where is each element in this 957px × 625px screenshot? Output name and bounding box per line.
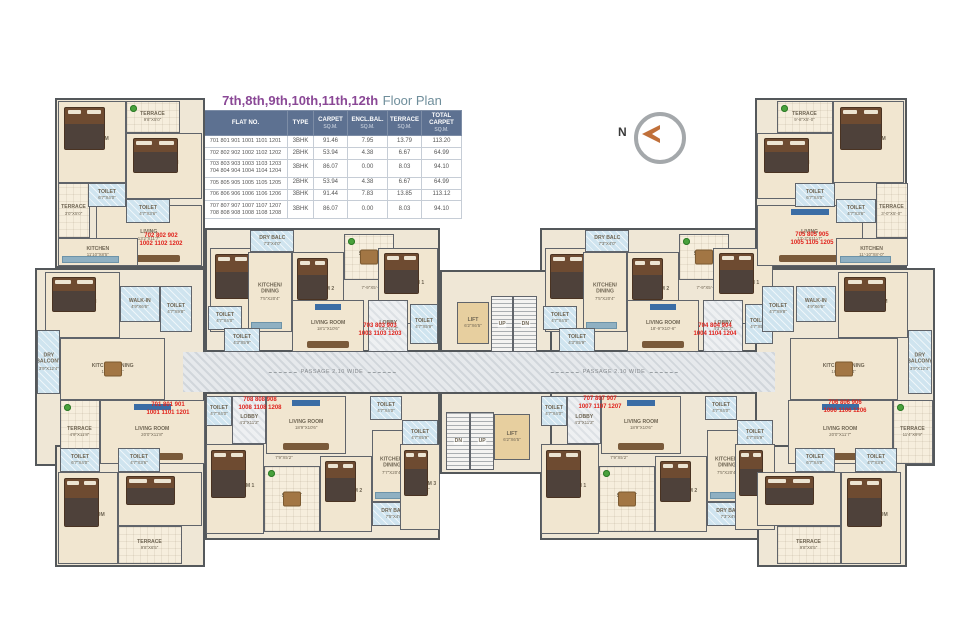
unit-number-label-705: 705 805 9051005 1105 1205 [790,232,833,248]
unit-number-line: 1005 1105 1205 [790,240,833,248]
kitchen-counter-icon [375,492,404,499]
room-lift-bottom: LIFT6'2"X6'5" [494,414,530,460]
room-706-bed2: BED ROOM9'8"X10'8" [757,472,841,526]
room-dimensions: 4'7"X4'0" [712,409,730,414]
room-dimensions: 4'7"X3'6" [847,212,865,217]
unit-number-line: 708 808 908 [238,397,281,405]
bed-icon [297,258,328,301]
room-name: KITCHEN [859,246,886,252]
room-label: 7'9"X5'2" [273,455,295,461]
plant-icon [268,470,275,477]
sofa-icon [283,443,330,450]
room-name: TOILET [411,429,430,435]
tv-icon [315,304,340,310]
room-name: TOILET [216,312,235,318]
room-label: KITCHEN/ DINING7'5"X20'4" [249,282,291,301]
room-name: KITCHEN/ DINING [587,283,623,294]
bed-icon [384,253,420,293]
room-702-toilet1: TOILET6'7"X4'0" [88,183,126,207]
room-706-bed: BED ROOM13'6"X9'6" [838,272,908,338]
unit-number-label-707: 707 807 9071007 1107 1207 [578,396,621,412]
room-707-sitout: SIT OUT7'1"X6'1" [599,466,655,532]
unit-number-line: 706 806 906 [823,400,866,408]
room-label: TOILET4'7"X3'6" [845,205,867,218]
unit-number-line: 703 803 903 [358,323,401,331]
bed-icon [550,254,584,299]
room-705-mbed: M.BED ROOM10'4"X13'3" [833,101,904,183]
unit-number-line: 1008 1108 1208 [238,405,281,413]
room-label: TOILET4'7"X4'0" [549,312,571,325]
room-name: LIFT [503,431,522,437]
room-701-toileta: TOILET6'7"X4'0" [60,448,100,472]
unit-number-line: 707 807 907 [578,396,621,404]
room-label: WALK-IN4'9"X6'6" [127,298,153,311]
unit-number-label-706: 706 806 9061006 1106 1206 [823,400,866,416]
room-label: LIVING ROOM18'9"X10'6" [621,419,661,432]
room-label: LOBBY4'3"X11'2" [572,414,597,427]
room-dimensions: 4'7"X5'9" [415,325,433,330]
room-706-kitchen: KITCHEN/DINING18'11"X12'4" [790,338,898,400]
bed-icon [325,461,356,501]
kitchen-counter-icon [840,256,891,263]
kitchen-counter-icon [710,492,739,499]
room-label: TOILET6'7"X4'0" [96,189,118,202]
room-label: TOILET4'7"X3'6" [865,454,887,467]
room-name: LIVING ROOM [624,419,658,425]
unit-number-line: 704 804 904 [693,323,736,331]
room-label: TERRACE9'8"X5'0" [138,111,167,124]
room-dimensions: 4'9"X6'6" [130,305,151,310]
room-name: TOILET [806,454,825,460]
bed-icon [404,450,428,496]
room-name: DN [453,438,462,444]
room-dimensions: 7'3"X4'0" [595,242,620,247]
room-label: TERRACE3'0"X5'0" [59,204,88,217]
room-name: KITCHEN [86,246,109,252]
room-703-toilet2: TOILET4'3"X5'9" [224,328,260,352]
bed-icon [847,478,883,527]
room-dimensions: 7'3"X4'0" [260,242,285,247]
room-701-toiletb: TOILET4'7"X3'6" [118,448,160,472]
room-label: TOILET4'7"X3'6" [137,205,159,218]
room-dimensions: 4'7"X5'9" [411,436,429,441]
room-label: LIFT6'2"X6'5" [501,431,523,444]
room-stair-bottom-dn: DN [446,412,470,470]
room-dimensions: 4'3"X11'2" [574,421,594,426]
room-708-sub: 7'9"X5'2" [264,452,304,464]
room-name: DRY BALC [259,235,285,241]
sofa-icon [642,341,684,348]
room-label: TOILET6'7"X4'0" [804,454,826,467]
room-dimensions: 4'7"X3'6" [130,461,148,466]
room-label: TOILET4'7"X4'0" [208,405,230,418]
room-701-terrace2: TERRACE9'8"X6'5" [118,526,182,564]
room-stair-bottom-up: UP [470,412,494,470]
room-name: KITCHEN/ DINING [252,283,288,294]
room-stair-top-up: UP [491,296,513,352]
room-706-toiletb: TOILET4'7"X3'6" [855,448,897,472]
unit-number-line: 1006 1106 1206 [823,408,866,416]
bed-icon [64,478,100,527]
room-703-living: LIVING ROOM18'1"X10'6" [292,300,364,352]
room-label: DN [453,438,464,445]
room-label: TOILET4'7"X4'0" [543,405,565,418]
room-name: TERRACE [901,426,926,432]
tv-icon [292,400,320,406]
room-dimensions: 9'8"X6'5" [138,546,161,551]
room-dimensions: 4'9"X11'8" [68,433,91,438]
room-dimensions: 7'9"X5'2" [275,456,293,461]
room-name: TOILET [806,189,825,195]
room-name: UP [478,438,487,444]
room-name: LIVING ROOM [823,426,857,432]
room-705-toilet2: TOILET4'7"X3'6" [836,199,876,223]
room-dimensions: 6'7"X4'0" [806,196,824,201]
room-708-sitout: SIT OUT7'1"X6'1" [264,466,320,532]
room-706-drybal: DRY BALCONY3'9"X12'4" [908,330,932,394]
room-name: TOILET [130,454,149,460]
room-label: TOILET4'7"X9'8" [165,303,187,316]
room-dimensions: 4'7"X4'0" [545,412,563,417]
room-706-mbed: M.BED ROOM10'4"X13'3" [841,472,901,564]
room-701-bed: BED ROOM13'6"X9'6" [45,272,120,338]
unit-number-label-704: 704 804 9041004 1104 1204 [693,323,736,339]
room-706-toilet: TOILET4'7"X9'8" [762,286,794,332]
room-704-living: LIVING ROOM18'-9"X10'-6" [627,300,699,352]
room-name: LIVING ROOM [135,426,169,432]
room-name: TOILET [847,205,866,211]
room-label: TERRACE9'8"X6'5" [135,539,164,552]
room-dimensions: 4'3"X5'9" [568,341,586,346]
room-name: WALK-IN [805,298,827,304]
room-701-kitchen: KITCHEN/DINING18'9"X12'4" [60,338,165,400]
room-701-bed2: BED ROOM9'8"X10'8" [118,472,202,526]
room-label: TOILET4'7"X5'9" [413,318,435,331]
room-dimensions: 18'-9"X10'-6" [647,327,679,332]
room-dimensions: 9'8"X6'5" [797,546,820,551]
room-706-terrace: TERRACE11'4"X9'9" [893,400,933,464]
bed-icon [215,254,249,299]
plant-icon [130,105,137,112]
bed-icon [719,253,755,293]
room-705-terrace: TERRACE9'-8"X5'-0" [777,101,833,133]
room-label: UP [497,321,507,328]
sofa-icon [779,255,841,262]
sofa-icon [307,341,349,348]
room-name: WALK-IN [129,298,151,304]
room-707-sub: 7'9"X5'2" [599,452,639,464]
room-dimensions: 18'9"X10'6" [290,426,322,431]
floorplan: LIVING13'2"X11'7"KITCHEN11'10"X8'5"TERRA… [0,0,957,625]
plant-icon [683,238,690,245]
unit-number-label-701: 701 801 9011001 1101 1201 [146,402,189,418]
room-705-toilet1: TOILET6'7"X4'0" [795,183,835,207]
room-702-terrace: TERRACE9'8"X5'0" [126,101,180,133]
room-701-drybal: DRY BALCONY3'9"X12'4" [37,330,60,394]
room-707-toiletl: TOILET4'7"X4'0" [541,396,567,426]
room-dimensions: 18'1"X10'6" [312,327,344,332]
room-dimensions: 6'7"X4'0" [806,461,824,466]
room-dimensions: 3'9"X12'4" [908,366,932,371]
room-705-terrace-s: TERRACE3'-0"X5'-0" [876,183,908,238]
room-dimensions: 3'9"X12'4" [37,366,60,371]
room-701-toilet: TOILET4'7"X9'8" [160,286,192,332]
room-name: TOILET [233,334,252,340]
room-label: TOILET4'7"X5'9" [409,429,431,442]
room-dimensions: 11'4"X9'9" [901,433,924,438]
room-705-kitchen: KITCHEN11'-10"X8'-0" [836,238,908,266]
room-label: 7'9"X5'2" [608,455,630,461]
room-label: TOILET4'7"X5'9" [744,429,766,442]
room-703-toilet3: TOILET4'7"X5'9" [410,304,438,344]
room-dimensions: 4'3"X11'2" [239,421,259,426]
unit-number-line: 1002 1102 1202 [139,241,182,249]
room-dimensions: 9'8"X5'0" [141,118,164,123]
room-label: DRY BALC7'3"X4'0" [257,235,288,248]
room-dimensions: 3'0"X5'0" [62,211,85,216]
room-708-mbed1: M.BED ROOM 19'2"X13'2" [206,444,264,534]
room-name: DRY BALCONY [37,353,60,364]
room-708-bed2: BED ROOM 210'4"X9'4" [320,456,372,532]
room-dimensions: 20'0"X11'7" [824,433,856,438]
room-707-bed1: BED ROOM 19'9"X13'2" [541,444,599,534]
room-708-toiletl: TOILET4'7"X4'0" [206,396,232,426]
tv-icon [650,304,675,310]
room-name: TERRACE [793,111,818,117]
unit-number-label-708: 708 808 9081008 1108 1208 [238,397,281,413]
room-706-walkin: WALK-IN4'9"X6'6" [796,286,836,322]
room-702-kitchen: KITCHEN11'10"X8'5" [58,238,138,266]
unit-number-label-703: 703 803 9031003 1103 1203 [358,323,401,339]
room-label: TOILET4'3"X5'9" [231,334,253,347]
room-name: TOILET [769,303,788,309]
plant-icon [897,404,904,411]
bed-icon [840,107,882,151]
room-dimensions: 7'9"X5'2" [610,456,628,461]
room-label: LIVING ROOM18'9"X10'6" [286,419,326,432]
room-label: UP [477,438,487,445]
room-name: TOILET [71,454,90,460]
room-706-terrace2: TERRACE9'8"X6'5" [777,526,841,564]
room-label: TERRACE11'4"X9'9" [898,426,927,439]
room-name: TERRACE [68,426,93,432]
dining-table-icon [283,492,301,507]
bed-icon [211,450,245,498]
room-lift-top: LIFT6'2"X6'5" [457,302,489,344]
passage-label-0: PASSAGE 2.10 WIDE [265,369,400,375]
room-name: LIVING ROOM [646,320,680,326]
dining-table-icon [618,492,636,507]
room-dimensions: 6'7"X4'0" [71,461,89,466]
room-name: DRY BALC [594,235,620,241]
room-dimensions: 18'9"X10'6" [625,426,657,431]
dining-table-icon [835,362,853,377]
room-701-walkin: WALK-IN4'9"X6'6" [120,286,160,322]
bed-icon [765,476,815,505]
sofa-icon [618,443,665,450]
room-703-kitchen: KITCHEN/ DINING7'5"X20'4" [248,252,292,332]
room-label: TERRACE9'-8"X5'-0" [790,111,819,124]
room-name: UP [498,321,507,327]
room-label: DN [520,321,531,328]
room-label: TOILET4'7"X3'6" [128,454,150,467]
room-name: LIVING ROOM [289,419,323,425]
room-label: LIFT6'2"X6'5" [462,317,484,330]
room-name: TERRACE [797,539,822,545]
room-dimensions: 4'7"X4'0" [377,409,395,414]
dining-table-icon [695,250,713,265]
room-701-mbed: M.BED ROOM10'4"X13'3" [58,472,118,564]
room-label: DRY BALC7'3"X4'0" [592,235,623,248]
room-name: TOILET [167,303,186,309]
room-dimensions: 6'2"X6'5" [464,324,482,329]
room-704-toilet2: TOILET4'3"X5'9" [559,328,595,352]
room-label: LIVING ROOM18'-9"X10'-6" [643,320,683,333]
room-label: TOILET6'7"X4'0" [69,454,91,467]
room-name: TOILET [377,402,396,408]
room-name: TOILET [545,405,564,411]
room-name: TOILET [98,189,117,195]
room-dimensions: 6'7"X4'0" [98,196,116,201]
room-702-bed: BED ROOM9'8"X10'8" [126,133,202,199]
room-dimensions: 4'3"X5'9" [233,341,251,346]
room-dimensions: 4'7"X5'9" [746,436,764,441]
tv-icon [791,209,828,215]
room-708-toileta: TOILET4'7"X4'0" [370,396,402,420]
room-707-bed2: BED ROOM 210'4"X9'4" [655,456,707,532]
room-name: DN [520,321,529,327]
room-name: TERRACE [880,205,905,211]
bed-icon [52,277,96,312]
room-708-bed3: BED ROOM 39'9"X13'2" [400,444,440,530]
tv-icon [627,400,655,406]
room-label: KITCHEN/ DINING7'5"X20'4" [584,282,626,301]
room-702-toilet2: TOILET4'7"X3'6" [126,199,170,223]
room-label: TERRACE4'9"X11'8" [65,426,94,439]
dining-table-icon [104,362,122,377]
room-702-mbed: M.BED ROOM10'4"X13'3" [58,101,126,183]
room-704-drybal: DRY BALC7'3"X4'0" [585,230,629,252]
room-label: DRY BALCONY3'9"X12'4" [37,352,60,371]
room-label: LIVING ROOM18'1"X10'6" [308,320,348,333]
room-name: TERRACE [141,111,166,117]
room-label: TOILET4'7"X4'0" [375,402,397,415]
room-name: TOILET [867,454,886,460]
room-dimensions: 3'-0"X5'-0" [880,211,903,216]
room-703-toilet1: TOILET4'7"X4'0" [208,306,242,330]
passage-label-1: PASSAGE 2.10 WIDE [547,369,682,375]
bed-icon [764,138,809,173]
unit-number-line: 1004 1104 1204 [693,331,736,339]
bed-icon [632,258,663,301]
room-dimensions: 20'0"X11'8" [136,433,168,438]
room-dimensions: 4'7"X3'6" [867,461,885,466]
room-name: TOILET [712,402,731,408]
room-label: TOILET6'7"X4'0" [804,189,826,202]
kitchen-counter-icon [62,256,119,263]
room-label: TERRACE9'8"X6'5" [794,539,823,552]
room-label: DRY BALCONY3'9"X12'4" [908,352,932,371]
room-dimensions: 9'-8"X5'-0" [793,118,816,123]
room-707-toileta: TOILET4'7"X4'0" [705,396,737,420]
room-706-toileta: TOILET6'7"X4'0" [795,448,835,472]
room-702-terrace-s: TERRACE3'0"X5'0" [58,183,90,238]
room-name: TOILET [210,405,229,411]
room-dimensions: 4'9"X6'6" [806,305,827,310]
floor-plan-page: 7th,8th,9th,10th,11th,12th Floor Plan FL… [0,0,957,625]
room-703-drybal: DRY BALC7'3"X4'0" [250,230,294,252]
room-dimensions: 4'7"X9'8" [769,310,787,315]
room-dimensions: 6'2"X6'5" [503,438,521,443]
room-name: LOBBY [239,414,260,420]
bed-icon [126,476,176,505]
bed-icon [844,277,885,312]
room-label: WALK-IN4'9"X6'6" [803,298,829,311]
unit-number-line: 702 802 902 [139,233,182,241]
unit-number-line: 1003 1103 1203 [358,331,401,339]
passage-label-text: PASSAGE 2.10 WIDE [583,369,646,375]
room-dimensions: 4'7"X9'8" [167,310,185,315]
room-label: LIVING ROOM20'0"X11'7" [820,426,860,439]
room-name: TOILET [139,205,158,211]
room-name: LIFT [464,317,483,323]
room-name: TOILET [746,429,765,435]
plant-icon [603,470,610,477]
bed-icon [660,461,691,501]
room-dimensions: 4'7"X4'0" [210,412,228,417]
room-name: TOILET [415,318,434,324]
dining-table-icon [360,250,378,265]
room-label: LOBBY4'3"X11'2" [237,414,262,427]
plant-icon [348,238,355,245]
room-name: TOILET [568,334,587,340]
room-label: TOILET4'7"X4'0" [214,312,236,325]
room-name: TOILET [551,312,570,318]
unit-number-line: 1001 1101 1201 [146,410,189,418]
room-dimensions: 4'7"X4'0" [216,319,234,324]
bed-icon [64,107,104,151]
room-dimensions: 7'5"X20'4" [588,296,622,301]
room-dimensions: 4'7"X4'0" [551,319,569,324]
unit-number-line: 1007 1107 1207 [578,404,621,412]
room-name: DRY BALCONY [908,353,932,364]
room-label: TOILET4'7"X4'0" [710,402,732,415]
room-dimensions: 7'5"X20'4" [253,296,287,301]
unit-number-line: 705 805 905 [790,232,833,240]
room-label: TERRACE3'-0"X5'-0" [877,204,906,217]
room-name: LIVING ROOM [311,320,345,326]
passage-label-text: PASSAGE 2.10 WIDE [301,369,364,375]
room-label: TOILET4'7"X9'8" [767,303,789,316]
room-name: TERRACE [62,205,87,211]
unit-number-line: 701 801 901 [146,402,189,410]
room-label: LIVING ROOM20'0"X11'8" [132,426,172,439]
room-label: TOILET4'3"X5'9" [566,334,588,347]
room-704-toilet1: TOILET4'7"X4'0" [543,306,577,330]
unit-number-label-702: 702 802 9021002 1102 1202 [139,233,182,249]
room-704-kitchen: KITCHEN/ DINING7'5"X20'4" [583,252,627,332]
room-name: LOBBY [574,414,595,420]
plant-icon [64,404,71,411]
room-name: TERRACE [138,539,163,545]
room-dimensions: 4'7"X3'6" [139,212,157,217]
bed-icon [133,138,178,173]
bed-icon [546,450,580,498]
room-stair-top-dn: DN [513,296,537,352]
plant-icon [781,105,788,112]
